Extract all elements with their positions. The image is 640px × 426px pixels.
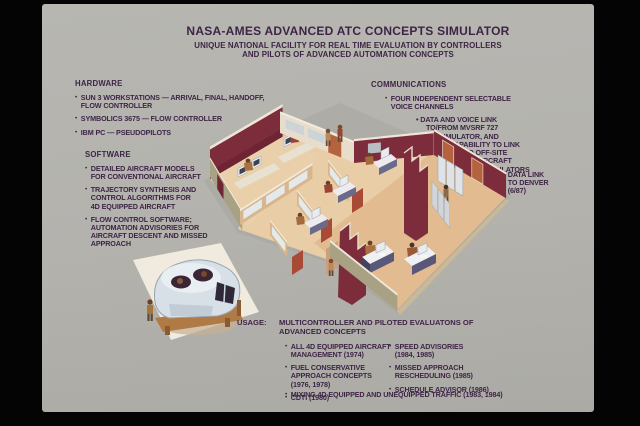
bullet-dot: • — [85, 165, 87, 181]
bullet-dot: • — [75, 115, 77, 123]
bullet-dot: • — [285, 343, 287, 359]
door — [292, 250, 303, 275]
person-figure — [147, 299, 153, 321]
bullet-dot: • — [75, 94, 77, 110]
slide-subtitle: UNIQUE NATIONAL FACILITY FOR REAL TIME E… — [102, 41, 594, 60]
cab-lower-panel — [169, 304, 213, 316]
bullet-dot: • — [285, 391, 287, 399]
bullet-item: •MISSED APPROACH RESCHEDULING (1985) — [389, 364, 511, 380]
bullet-item: •FUEL CONSERVATIVE APPROACH CONCEPTS (19… — [285, 364, 403, 388]
simulator-cab-illustration — [125, 240, 265, 345]
title-block: NASA-AMES ADVANCED ATC CONCEPTS SIMULATO… — [102, 24, 594, 60]
slide-title: NASA-AMES ADVANCED ATC CONCEPTS SIMULATO… — [102, 24, 594, 38]
windshield-mullion — [224, 285, 225, 303]
bullet-text: MISSED APPROACH RESCHEDULING (1985) — [395, 364, 473, 380]
bullet-dot: • — [85, 216, 87, 249]
bullet-text: ALL 4D EQUIPPED AIRCRAFT MANAGEMENT (197… — [291, 343, 391, 359]
bullet-text: FUEL CONSERVATIVE APPROACH CONCEPTS (197… — [291, 364, 372, 388]
wall-equipment-panel — [368, 142, 381, 153]
platform-leg — [165, 326, 170, 335]
platform-leg — [225, 318, 230, 327]
usage-label: USAGE: — [237, 318, 267, 327]
bullet-dot: • — [389, 364, 391, 380]
bullet-item: •ALL 4D EQUIPPED AIRCRAFT MANAGEMENT (19… — [285, 343, 403, 359]
usage-footnote: • MIXING 4D EQUIPPED AND UNEQUIPPED TRAF… — [285, 391, 615, 399]
bullet-item: •SPEED ADVISORIES (1984, 1985) — [389, 343, 511, 359]
usage-heading: MULTICONTROLLER AND PILOTED EVALUATONS O… — [279, 318, 494, 336]
photo-frame: NASA-AMES ADVANCED ATC CONCEPTS SIMULATO… — [0, 0, 640, 426]
bullet-dot: • — [285, 364, 287, 388]
pilot-head — [177, 278, 183, 284]
person-figure — [329, 259, 334, 276]
bullet-dot: • — [75, 129, 77, 137]
cab-dome-highlight — [161, 263, 221, 293]
pilot-head — [201, 271, 207, 277]
cab-ladder — [237, 300, 241, 316]
presentation-slide: NASA-AMES ADVANCED ATC CONCEPTS SIMULATO… — [42, 4, 594, 412]
bullet-text: MIXING 4D EQUIPPED AND UNEQUIPPED TRAFFI… — [291, 391, 503, 399]
bullet-text: SPEED ADVISORIES (1984, 1985) — [395, 343, 464, 359]
bullet-dot: • — [389, 343, 391, 359]
bullet-text: IBM PC — PSEUDOPILOTS — [81, 129, 171, 137]
bullet-dot: • — [85, 186, 87, 210]
